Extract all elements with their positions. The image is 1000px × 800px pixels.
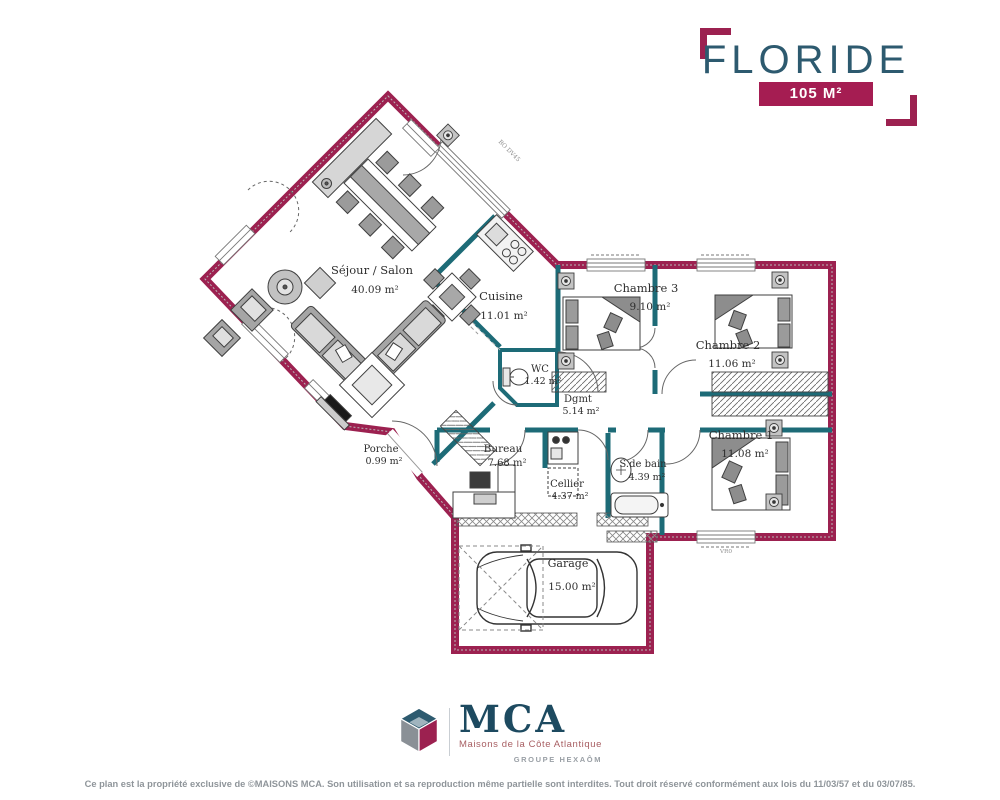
window-annotation: BO DV45 [497, 139, 522, 164]
room-label-dgmt: Dgmt [564, 394, 592, 405]
room-area-wc: 1.42 m² [525, 376, 562, 387]
floor-plan-page: FLORIDE 105 M² [0, 0, 1000, 800]
room-area-porche: 0.99 m² [366, 456, 403, 467]
mca-cube-icon [398, 706, 440, 756]
room-area-sdebain: 4.39 m² [629, 472, 666, 483]
room-label-cellier: Cellier [550, 479, 584, 490]
room-label-sejour: Séjour / Salon [331, 263, 414, 277]
room-area-dgmt: 5.14 m² [563, 406, 600, 417]
room-area-chambre3: 9.10 m² [630, 301, 671, 313]
room-label-sdebain: S.de bain [619, 459, 667, 470]
room-area-cuisine: 11.01 m² [480, 310, 528, 322]
logo-company: Maisons de la Côte Atlantique [459, 739, 602, 750]
copyright-notice: Ce plan est la propriété exclusive de ©M… [0, 779, 1000, 789]
bed-chambre3-icon [563, 297, 640, 350]
room-area-cellier: 4.37 m² [552, 491, 589, 502]
room-area-chambre1: 11.08 m² [721, 448, 769, 460]
room-label-chambre2: Chambre 2 [696, 338, 761, 352]
logo-block: MCA Maisons de la Côte Atlantique GROUPE… [0, 700, 1000, 764]
room-label-chambre3: Chambre 3 [614, 281, 679, 295]
room-label-porche: Porche [363, 444, 398, 455]
shutter-annotation: VR0 [719, 549, 733, 555]
logo-group: GROUPE HEXAÔM [514, 755, 602, 764]
room-label-cuisine: Cuisine [479, 289, 523, 303]
room-area-bureau: 7.68 m² [488, 458, 527, 469]
room-area-chambre2: 11.06 m² [708, 358, 756, 370]
room-label-chambre1: Chambre 1 [709, 428, 774, 442]
room-label-garage: Garage [548, 557, 589, 570]
room-area-sejour: 40.09 m² [351, 284, 399, 296]
room-label-wc: WC [531, 364, 549, 375]
room-area-garage: 15.00 m² [548, 581, 596, 593]
logo-divider [449, 708, 450, 756]
room-label-bureau: Bureau [484, 443, 523, 455]
logo-acronym: MCA [459, 700, 567, 738]
floor-plan-drawing: Séjour / Salon 40.09 m² Cuisine 11.01 m²… [0, 0, 1000, 800]
